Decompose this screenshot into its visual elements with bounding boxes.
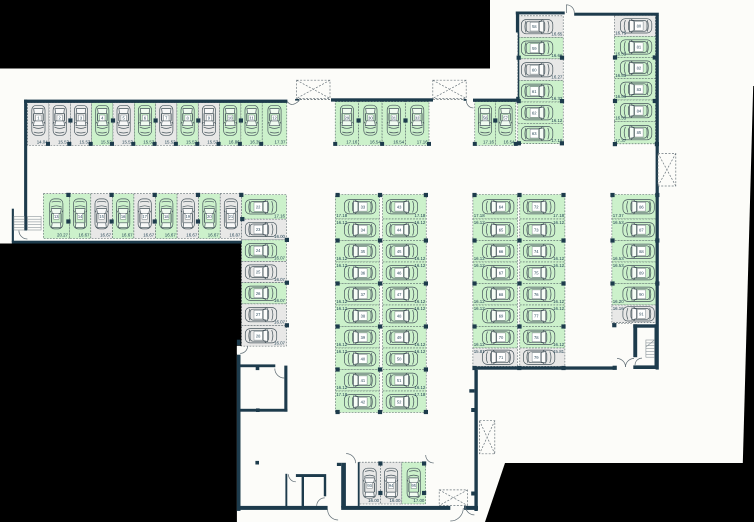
svg-text:16.07: 16.07 bbox=[274, 256, 286, 261]
svg-text:81: 81 bbox=[637, 45, 642, 50]
svg-text:16.07: 16.07 bbox=[274, 320, 286, 325]
svg-text:59: 59 bbox=[532, 46, 537, 51]
svg-text:89: 89 bbox=[639, 270, 644, 275]
svg-text:17.18: 17.18 bbox=[414, 213, 426, 218]
svg-text:17.16: 17.16 bbox=[274, 213, 286, 218]
svg-text:15: 15 bbox=[99, 214, 104, 219]
svg-text:16.12: 16.12 bbox=[336, 306, 348, 311]
svg-text:16.12: 16.12 bbox=[336, 385, 348, 390]
svg-text:90: 90 bbox=[639, 292, 644, 297]
svg-text:64: 64 bbox=[499, 204, 504, 209]
svg-text:16.12: 16.12 bbox=[414, 299, 426, 304]
svg-text:20.27: 20.27 bbox=[57, 233, 69, 238]
svg-text:16.12: 16.12 bbox=[414, 256, 426, 261]
svg-text:17.18: 17.18 bbox=[336, 213, 348, 218]
svg-text:16.12: 16.12 bbox=[474, 263, 486, 268]
svg-text:26: 26 bbox=[256, 291, 261, 296]
svg-text:31: 31 bbox=[392, 115, 397, 120]
svg-text:67: 67 bbox=[499, 270, 504, 275]
svg-text:40: 40 bbox=[361, 356, 366, 361]
svg-text:13: 13 bbox=[54, 214, 59, 219]
svg-text:33: 33 bbox=[361, 204, 366, 209]
svg-text:16.12: 16.12 bbox=[414, 342, 426, 347]
svg-text:51: 51 bbox=[397, 378, 402, 383]
svg-text:16.12: 16.12 bbox=[336, 263, 348, 268]
svg-text:16.53: 16.53 bbox=[613, 256, 625, 261]
svg-text:56: 56 bbox=[483, 115, 488, 120]
svg-text:16.65: 16.65 bbox=[551, 32, 563, 37]
svg-text:36: 36 bbox=[361, 270, 366, 275]
svg-text:16.75: 16.75 bbox=[615, 31, 627, 36]
svg-text:12: 12 bbox=[272, 116, 277, 121]
svg-text:16.12: 16.12 bbox=[336, 342, 348, 347]
svg-text:20: 20 bbox=[207, 214, 212, 219]
svg-text:16.53: 16.53 bbox=[615, 73, 627, 78]
svg-text:16.67: 16.67 bbox=[122, 233, 134, 238]
svg-text:16.53: 16.53 bbox=[615, 94, 627, 99]
svg-text:16.12: 16.12 bbox=[414, 385, 426, 390]
svg-text:16.12: 16.12 bbox=[474, 299, 486, 304]
svg-text:61: 61 bbox=[532, 89, 537, 94]
svg-text:44: 44 bbox=[397, 227, 402, 232]
svg-text:69: 69 bbox=[499, 313, 504, 318]
svg-text:46: 46 bbox=[397, 270, 402, 275]
svg-text:16.12: 16.12 bbox=[336, 256, 348, 261]
svg-text:16.12: 16.12 bbox=[553, 256, 565, 261]
svg-text:27: 27 bbox=[256, 312, 261, 317]
svg-text:19: 19 bbox=[186, 214, 191, 219]
svg-text:25: 25 bbox=[256, 270, 261, 275]
svg-text:17.16: 17.16 bbox=[346, 139, 358, 144]
svg-text:16.67: 16.67 bbox=[143, 233, 155, 238]
svg-text:88: 88 bbox=[639, 249, 644, 254]
svg-text:63: 63 bbox=[532, 131, 537, 136]
svg-text:16.67: 16.67 bbox=[186, 233, 198, 238]
svg-text:16.67: 16.67 bbox=[100, 233, 112, 238]
svg-text:16.07: 16.07 bbox=[274, 277, 286, 282]
svg-text:23: 23 bbox=[256, 227, 261, 232]
svg-text:16.00: 16.00 bbox=[390, 498, 402, 503]
svg-text:91: 91 bbox=[639, 312, 644, 317]
svg-text:21: 21 bbox=[229, 214, 234, 219]
svg-text:17.16: 17.16 bbox=[417, 139, 429, 144]
svg-text:16.20: 16.20 bbox=[613, 299, 625, 304]
svg-text:17.18: 17.18 bbox=[553, 213, 565, 218]
svg-text:47: 47 bbox=[397, 292, 402, 297]
svg-text:17.37: 17.37 bbox=[613, 213, 625, 218]
svg-text:32: 32 bbox=[415, 115, 420, 120]
svg-text:17.18: 17.18 bbox=[336, 392, 348, 397]
svg-text:16: 16 bbox=[121, 214, 126, 219]
svg-text:16.54: 16.54 bbox=[393, 139, 405, 144]
svg-text:83: 83 bbox=[637, 87, 642, 92]
svg-text:60: 60 bbox=[532, 67, 537, 72]
svg-text:74: 74 bbox=[534, 249, 539, 254]
svg-text:16.00: 16.00 bbox=[368, 498, 380, 503]
svg-text:16.54: 16.54 bbox=[504, 139, 516, 144]
svg-text:16.12: 16.12 bbox=[474, 256, 486, 261]
svg-text:30: 30 bbox=[368, 115, 373, 120]
svg-text:16.67: 16.67 bbox=[79, 233, 91, 238]
svg-text:76: 76 bbox=[534, 292, 539, 297]
svg-text:16.12: 16.12 bbox=[336, 220, 348, 225]
svg-text:62: 62 bbox=[532, 110, 537, 115]
svg-text:17.18: 17.18 bbox=[414, 392, 426, 397]
svg-text:78: 78 bbox=[534, 335, 539, 340]
svg-text:50: 50 bbox=[397, 356, 402, 361]
svg-text:18: 18 bbox=[164, 214, 169, 219]
svg-text:10: 10 bbox=[228, 116, 233, 121]
svg-text:79: 79 bbox=[534, 355, 539, 360]
svg-text:16.07: 16.07 bbox=[274, 340, 286, 345]
svg-text:42: 42 bbox=[361, 399, 366, 404]
svg-text:34: 34 bbox=[361, 227, 366, 232]
svg-text:66: 66 bbox=[499, 249, 504, 254]
svg-text:82: 82 bbox=[637, 66, 642, 71]
svg-text:72: 72 bbox=[534, 204, 539, 209]
svg-text:85: 85 bbox=[637, 130, 642, 135]
svg-text:16.12: 16.12 bbox=[414, 263, 426, 268]
svg-text:16.12: 16.12 bbox=[414, 349, 426, 354]
svg-text:94: 94 bbox=[389, 483, 394, 488]
svg-text:16.54: 16.54 bbox=[370, 139, 382, 144]
svg-text:16.12: 16.12 bbox=[553, 263, 565, 268]
svg-text:75: 75 bbox=[534, 270, 539, 275]
svg-text:87: 87 bbox=[639, 227, 644, 232]
svg-text:15.81: 15.81 bbox=[553, 349, 565, 354]
svg-text:16.87: 16.87 bbox=[229, 233, 241, 238]
svg-text:16.12: 16.12 bbox=[474, 220, 486, 225]
svg-text:16.16: 16.16 bbox=[613, 306, 625, 311]
svg-text:73: 73 bbox=[534, 227, 539, 232]
svg-text:16.12: 16.12 bbox=[474, 342, 486, 347]
svg-text:11: 11 bbox=[249, 116, 254, 121]
svg-text:41: 41 bbox=[361, 378, 366, 383]
svg-text:17: 17 bbox=[142, 214, 147, 219]
svg-text:16.53: 16.53 bbox=[613, 220, 625, 225]
svg-text:17.18: 17.18 bbox=[474, 213, 486, 218]
svg-text:16.12: 16.12 bbox=[414, 220, 426, 225]
svg-text:16.12: 16.12 bbox=[553, 306, 565, 311]
svg-text:70: 70 bbox=[499, 335, 504, 340]
svg-text:84: 84 bbox=[637, 108, 642, 113]
svg-text:29: 29 bbox=[345, 115, 350, 120]
svg-text:16.12: 16.12 bbox=[336, 349, 348, 354]
svg-text:16.12: 16.12 bbox=[553, 342, 565, 347]
svg-text:65: 65 bbox=[499, 227, 504, 232]
svg-text:48: 48 bbox=[397, 313, 402, 318]
svg-text:16.00: 16.00 bbox=[274, 234, 286, 239]
svg-text:52: 52 bbox=[397, 399, 402, 404]
svg-text:80: 80 bbox=[637, 24, 642, 29]
svg-text:16.12: 16.12 bbox=[553, 220, 565, 225]
svg-text:49: 49 bbox=[397, 335, 402, 340]
svg-text:16.53: 16.53 bbox=[615, 116, 627, 121]
svg-text:35: 35 bbox=[361, 249, 366, 254]
svg-text:22: 22 bbox=[256, 204, 261, 209]
svg-text:16.12: 16.12 bbox=[551, 118, 563, 123]
svg-text:43: 43 bbox=[397, 204, 402, 209]
svg-text:16.12: 16.12 bbox=[336, 299, 348, 304]
svg-text:77: 77 bbox=[534, 313, 539, 318]
svg-text:45: 45 bbox=[397, 249, 402, 254]
svg-text:16.12: 16.12 bbox=[474, 306, 486, 311]
svg-text:38: 38 bbox=[361, 313, 366, 318]
svg-text:14: 14 bbox=[78, 214, 83, 219]
svg-text:16.07: 16.07 bbox=[274, 298, 286, 303]
svg-text:16.12: 16.12 bbox=[553, 299, 565, 304]
svg-text:16.27: 16.27 bbox=[551, 75, 563, 80]
svg-text:17.00: 17.00 bbox=[413, 498, 425, 503]
svg-text:39: 39 bbox=[361, 335, 366, 340]
svg-text:95: 95 bbox=[412, 483, 417, 488]
svg-text:17.16: 17.16 bbox=[483, 139, 495, 144]
svg-text:16.67: 16.67 bbox=[165, 233, 177, 238]
svg-text:93: 93 bbox=[367, 483, 372, 488]
svg-text:57: 57 bbox=[503, 115, 508, 120]
svg-text:58: 58 bbox=[532, 24, 537, 29]
svg-text:15.81: 15.81 bbox=[474, 349, 486, 354]
svg-text:71: 71 bbox=[499, 355, 504, 360]
svg-text:17.37: 17.37 bbox=[275, 139, 287, 144]
svg-text:24: 24 bbox=[256, 248, 261, 253]
svg-text:28: 28 bbox=[256, 333, 261, 338]
svg-text:86: 86 bbox=[639, 204, 644, 209]
svg-text:16.12: 16.12 bbox=[414, 306, 426, 311]
svg-text:68: 68 bbox=[499, 292, 504, 297]
svg-text:16.53: 16.53 bbox=[613, 263, 625, 268]
svg-text:16.67: 16.67 bbox=[208, 233, 220, 238]
svg-text:37: 37 bbox=[361, 292, 366, 297]
